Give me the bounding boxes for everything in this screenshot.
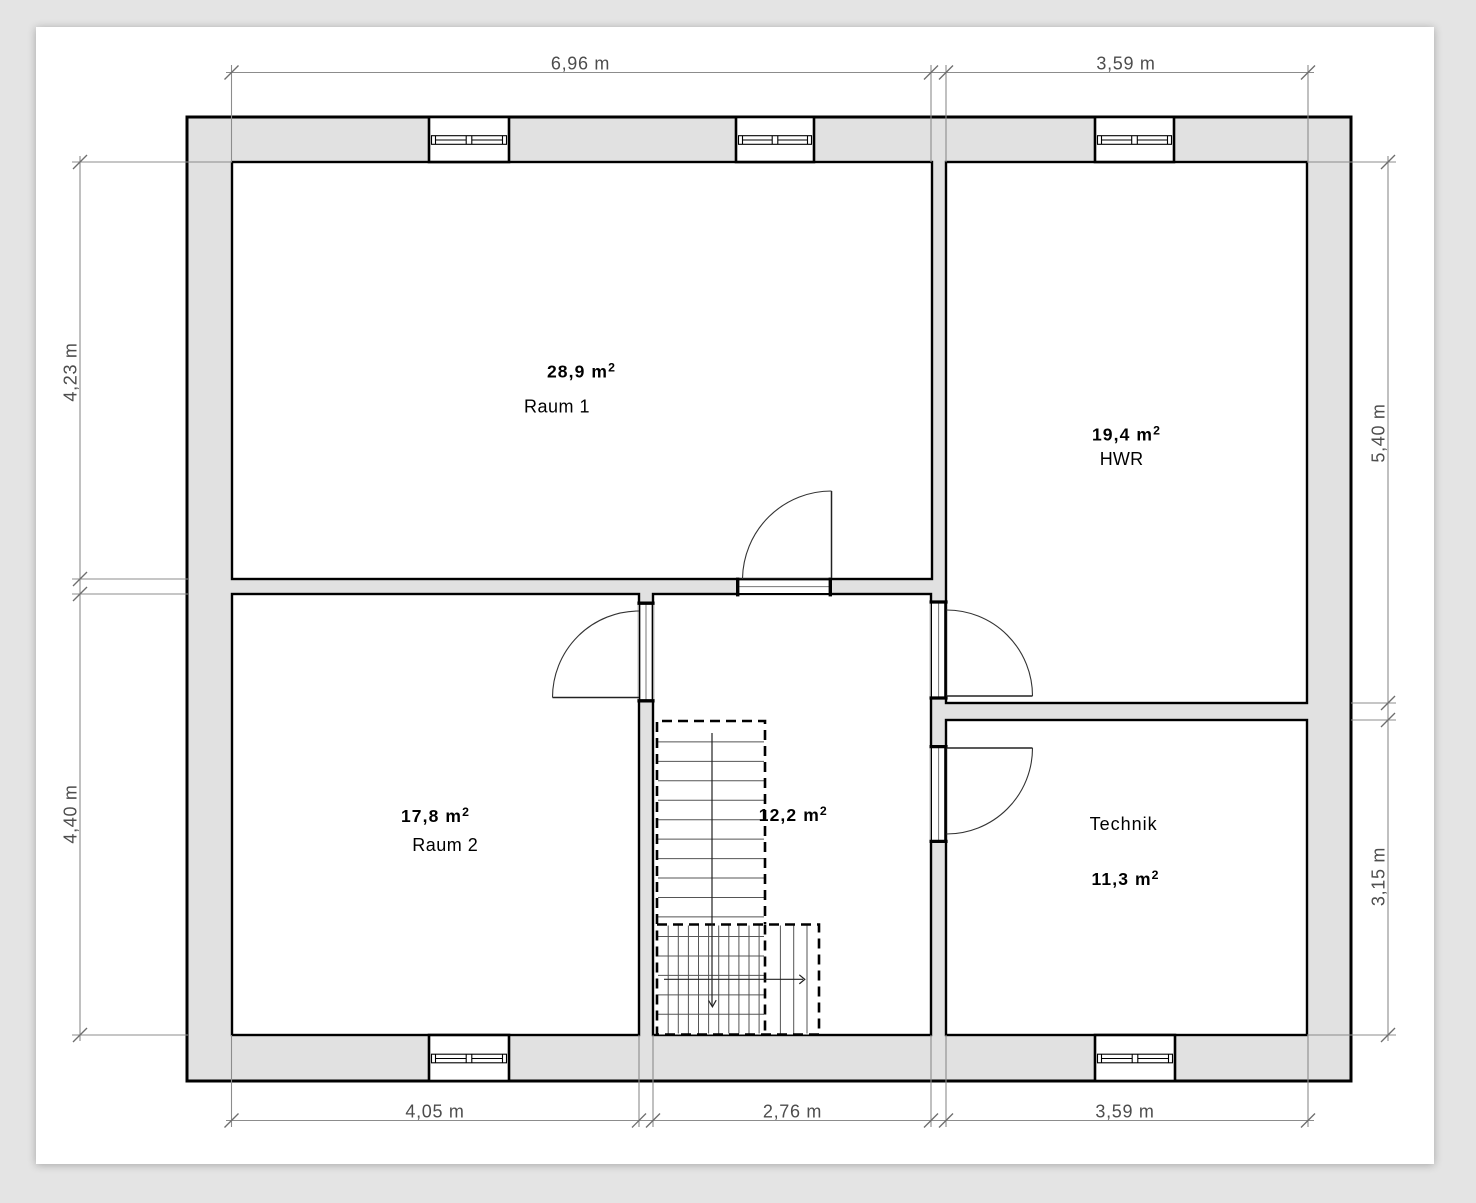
svg-text:3,59 m: 3,59 m (1095, 1102, 1154, 1122)
svg-text:17,8 m2: 17,8 m2 (401, 805, 470, 826)
svg-text:5,40 m: 5,40 m (1369, 403, 1389, 462)
svg-text:4,23 m: 4,23 m (61, 342, 81, 401)
svg-text:Raum 1: Raum 1 (524, 397, 590, 417)
svg-text:3,15 m: 3,15 m (1369, 847, 1389, 906)
svg-text:11,3 m2: 11,3 m2 (1092, 868, 1160, 889)
svg-text:6,96 m: 6,96 m (551, 54, 610, 74)
svg-text:19,4 m2: 19,4 m2 (1092, 423, 1161, 444)
svg-text:4,05 m: 4,05 m (405, 1102, 464, 1122)
svg-text:Raum 2: Raum 2 (412, 835, 478, 855)
svg-text:2,76 m: 2,76 m (763, 1102, 822, 1122)
svg-text:HWR: HWR (1100, 449, 1144, 469)
svg-text:12,2 m2: 12,2 m2 (759, 804, 828, 825)
svg-text:Technik: Technik (1090, 814, 1158, 834)
svg-text:28,9 m2: 28,9 m2 (547, 360, 616, 381)
svg-text:4,40 m: 4,40 m (61, 784, 81, 843)
svg-text:3,59 m: 3,59 m (1096, 54, 1155, 74)
